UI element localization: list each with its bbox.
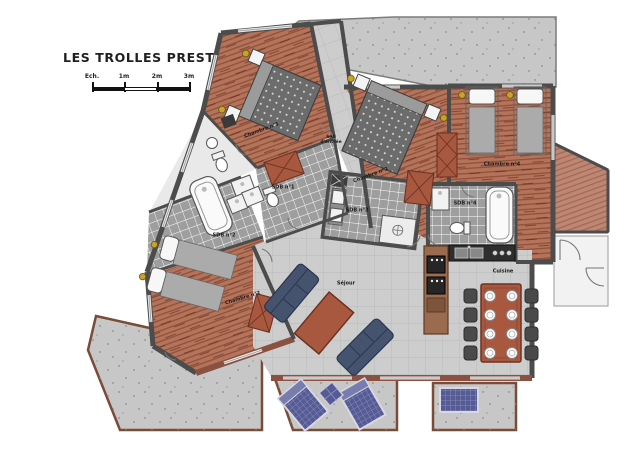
floorplan-page: LES TROLLES PRESTIGE N°3 Ech. 1m 2m 3m — [0, 0, 640, 452]
room-label-hall-line2: d'entrée — [320, 141, 341, 146]
entry-landing — [554, 236, 608, 306]
floorplan-drawing — [0, 0, 640, 452]
room-label-sdb4: SDB n°4 — [454, 201, 477, 207]
room-label-hall: hall d'entrée — [320, 136, 341, 146]
wardrobe-chambre4 — [437, 133, 457, 177]
balcony-mat — [440, 388, 478, 412]
wardrobe-chambre3 — [404, 171, 434, 206]
room-label-sdb3: SDB n°3 — [346, 208, 369, 214]
room-label-cuisine: Cuisine — [493, 269, 514, 275]
room-label-sdb1: SDB n°1 — [272, 185, 295, 191]
room-label-chambre4: Chambre n°4 — [484, 162, 521, 168]
room-label-sejour: Séjour — [337, 281, 355, 287]
room-label-sdb2: SDB n°2 — [213, 233, 236, 239]
